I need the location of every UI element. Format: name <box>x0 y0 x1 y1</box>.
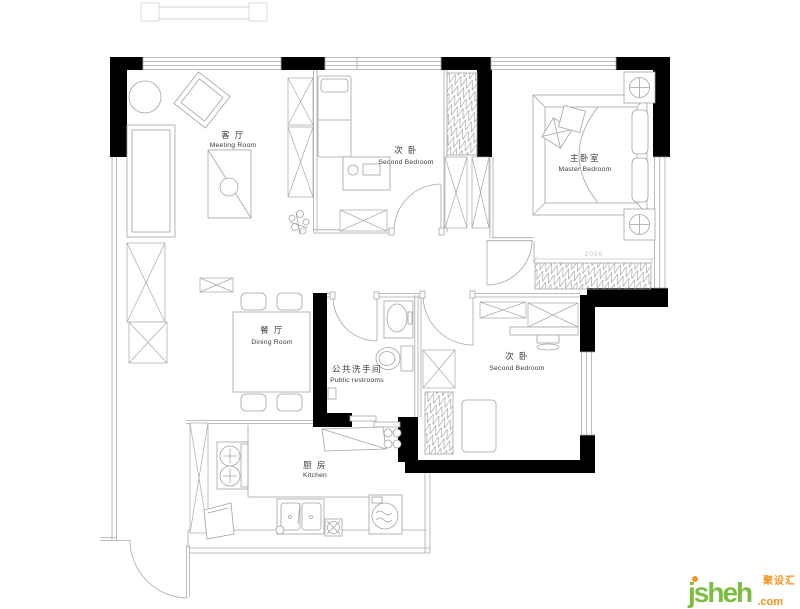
fridge-symbol <box>204 503 234 539</box>
watermark-brand-cn: 聚设汇 <box>763 572 796 587</box>
ac-platform <box>141 3 267 21</box>
cabinet-symbol <box>340 210 387 231</box>
door-bedroom-top <box>389 184 444 235</box>
door-master <box>487 240 532 285</box>
door-bathroom <box>330 292 379 341</box>
dimension-master-closet: 2050 <box>533 251 654 263</box>
room-label-master-cn: 主卧室 <box>570 153 600 163</box>
side-table-symbol <box>129 81 161 113</box>
wall-segment <box>313 293 327 427</box>
left-exterior-wall <box>112 157 117 540</box>
room-label-living-cn: 客 厅 <box>221 130 245 140</box>
cabinet-symbol <box>129 322 167 363</box>
desk-symbol <box>510 327 578 350</box>
cabinet-symbol <box>445 157 467 228</box>
dining-chair-symbol <box>277 293 302 310</box>
room-label-bedroom-right-cn: 次 卧 <box>505 351 529 361</box>
dining-chair-symbol <box>277 394 302 411</box>
room-label-bedroom-right-en: Second Bedroom <box>489 365 544 372</box>
wall-segment <box>580 295 595 352</box>
washing-machine-symbol <box>369 495 402 534</box>
cabinet-symbol <box>200 278 233 292</box>
floor-drain-symbol <box>328 388 336 399</box>
coffee-table-symbol <box>208 150 251 218</box>
cabinet-symbol <box>288 127 313 197</box>
window-bedroom-right <box>580 352 595 435</box>
floor-plan-canvas: 2050 <box>0 0 800 609</box>
watermark-suffix: .com <box>757 596 783 608</box>
room-label-dining-en: Dining Room <box>251 339 293 346</box>
wall-segment <box>398 417 418 462</box>
room-label-bathroom-cn: 公共洗手间 <box>332 364 382 374</box>
gas-stove-symbol <box>217 442 248 489</box>
stool-symbol <box>537 344 559 350</box>
wall-segment <box>281 57 325 70</box>
sink-symbol <box>276 499 324 534</box>
wardrobe-hatch <box>447 73 477 155</box>
cabinet-symbol <box>528 303 578 327</box>
bed-symbol <box>318 76 351 157</box>
floor-plan-drawing: 2050 <box>0 0 800 609</box>
wall-segment <box>405 460 595 473</box>
wardrobe-hatch <box>425 392 453 454</box>
room-label-living-en: Meeting Room <box>210 142 257 149</box>
washbasin-symbol <box>384 301 413 338</box>
room-label-master-en: Master Bedroom <box>558 166 611 173</box>
bed-symbol <box>462 400 496 452</box>
room-label-dining-cn: 餐 厅 <box>260 325 284 335</box>
lounge-chair-symbol <box>174 72 230 128</box>
wall-master-west <box>490 157 493 238</box>
wall-segment <box>477 70 492 157</box>
corner-drain-symbol <box>325 519 342 536</box>
room-label-bedroom-top-cn: 次 卧 <box>394 145 418 155</box>
wall-master-entry <box>487 238 534 263</box>
nightstand-symbol <box>624 72 655 103</box>
plant-symbol <box>289 211 309 235</box>
wall-living-bedroom <box>314 70 318 232</box>
wall-corridor-south <box>327 294 580 297</box>
room-label-bathroom-en: Public restrooms <box>330 377 384 384</box>
wall-segment <box>653 57 670 157</box>
wall-bathroom-east <box>415 295 421 417</box>
window-master <box>491 57 616 70</box>
dimension-text: 2050 <box>585 251 603 258</box>
cabinet-symbol <box>472 157 489 228</box>
room-label-bedroom-top-en: Second Bedroom <box>378 159 433 166</box>
dining-chair-symbol <box>241 394 266 411</box>
sofa-symbol <box>127 125 175 237</box>
wardrobe-hatch <box>535 263 651 289</box>
pillow-symbol <box>632 158 648 202</box>
window-living <box>143 57 281 70</box>
dining-table-symbol <box>233 312 310 392</box>
wall-balcony-edge <box>100 538 190 598</box>
sliding-door-kitchen <box>350 416 400 427</box>
wall-segment <box>441 57 491 70</box>
room-label-kitchen-en: Kitchen <box>303 472 327 479</box>
wall-segment <box>313 413 352 427</box>
cabinet-symbol <box>423 350 455 388</box>
nightstand-symbol <box>624 209 655 240</box>
watermark-brand: jsheh <box>688 579 751 607</box>
wall-segment <box>587 288 668 307</box>
curved-exterior-corner <box>130 540 188 598</box>
watermark-dot-icon <box>692 576 698 582</box>
door-bedroom-right <box>420 291 475 345</box>
wall-segment <box>110 57 127 157</box>
dining-chair-symbol <box>241 293 266 310</box>
cabinet-symbol <box>288 78 313 125</box>
pillow-symbol <box>632 110 648 154</box>
room-label-kitchen-cn: 厨 房 <box>303 460 327 470</box>
watermark: jsheh 聚设汇 .com <box>688 572 796 606</box>
window-bedroom-top <box>325 57 441 70</box>
cabinet-symbol <box>127 243 165 322</box>
cabinet-symbol <box>480 302 526 318</box>
